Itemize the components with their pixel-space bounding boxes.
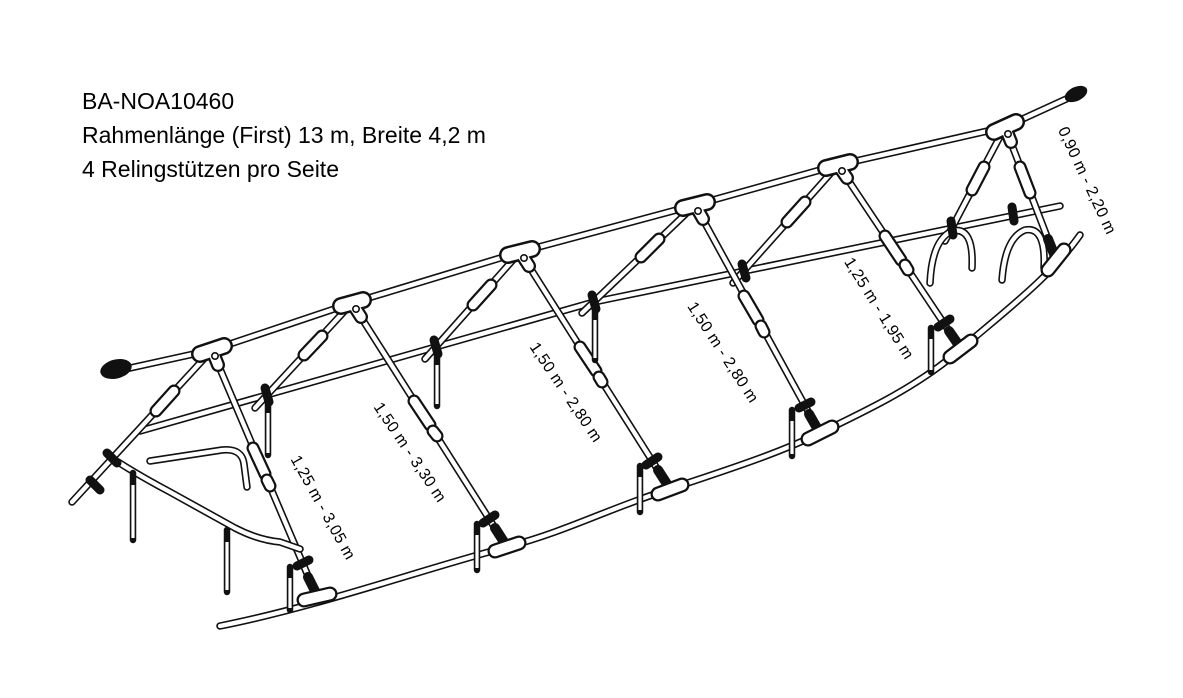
diagram-page: BA-NOA10460 Rahmenlänge (First) 13 m, Br… [0,0,1183,698]
frame-line-drawing [0,0,1183,698]
middle-rail-pole [140,206,1060,431]
rail-collars [304,250,1064,600]
